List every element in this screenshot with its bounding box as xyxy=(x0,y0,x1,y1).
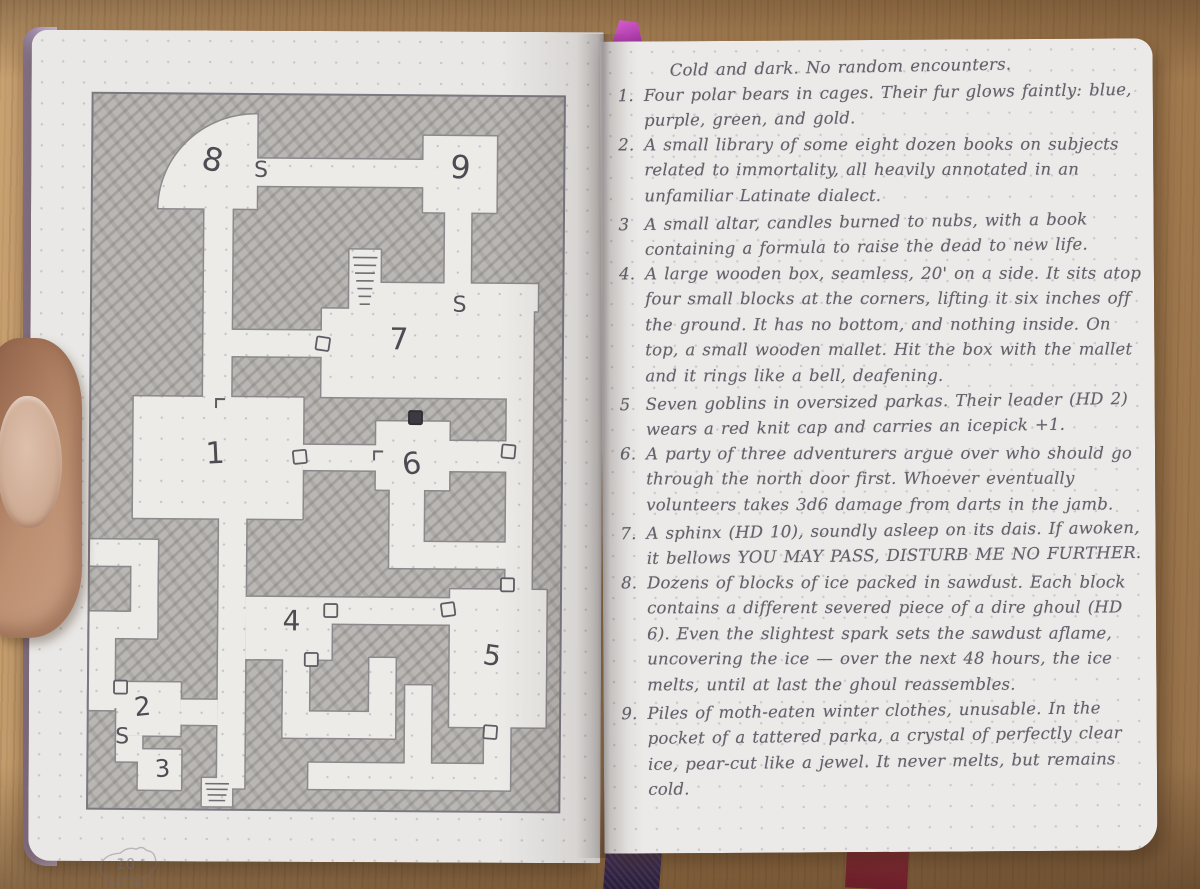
door-icon xyxy=(315,336,330,351)
door-icon xyxy=(501,444,515,458)
door-icon xyxy=(114,681,127,694)
floor-shape xyxy=(89,539,157,566)
entry-number: 7. xyxy=(620,521,636,547)
floor-shape xyxy=(321,309,533,399)
floor-shape xyxy=(217,517,246,788)
door-icon xyxy=(324,604,337,617)
entry-number: 2. xyxy=(618,133,634,158)
corner-tick-mark xyxy=(374,451,383,460)
floor-shape xyxy=(449,589,546,727)
floor-shape xyxy=(116,735,142,761)
door-icon xyxy=(441,602,456,617)
floor-shape xyxy=(349,250,381,312)
map-hatch-layer-2 xyxy=(87,92,566,813)
door-icon xyxy=(501,578,514,591)
stairs-icons xyxy=(205,256,377,801)
note-entry: 6.A party of three adventurers argue ove… xyxy=(646,441,1142,518)
page-number-doodle-left: 10 xyxy=(86,838,182,889)
room-label-7: 7 xyxy=(389,322,408,357)
floor-shape xyxy=(180,700,217,725)
room-label-6: 6 xyxy=(400,446,424,483)
entry-text: Dozens of blocks of ice packed in sawdus… xyxy=(647,573,1126,694)
note-entry: 8.Dozens of blocks of ice packed in sawd… xyxy=(647,570,1143,698)
floor-shape xyxy=(321,309,533,399)
floor-shape xyxy=(369,658,396,738)
map-border xyxy=(87,93,565,813)
stairs-icon xyxy=(205,784,229,801)
floor-shape xyxy=(448,441,508,472)
entry-number: 6. xyxy=(620,441,636,466)
note-entry: 2.A small library of some eight dozen bo… xyxy=(644,132,1140,209)
entry-text: A large wooden box, seamless, 20' on a s… xyxy=(645,264,1141,385)
floor-shape xyxy=(283,657,310,737)
entry-text: A party of three adventurers argue over … xyxy=(646,444,1132,515)
floor-shape xyxy=(283,711,396,738)
entry-number: 8. xyxy=(621,570,637,595)
notebook-photo-scene: SSS 897164523 10 Cold and dark. No rando… xyxy=(0,0,1200,889)
room-label-1: 1 xyxy=(205,436,226,472)
room-label-2: 2 xyxy=(133,692,152,723)
entry-text: Piles of moth-eaten winter clothes, unus… xyxy=(647,699,1122,800)
corner-tick-mark xyxy=(216,399,225,408)
floor-shape xyxy=(405,685,432,789)
floor-shape xyxy=(405,685,432,789)
floor-shape xyxy=(283,657,310,737)
entry-text: Four polar bears in cages. Their fur glo… xyxy=(644,80,1132,130)
thumb-nail xyxy=(0,396,62,528)
floor-shape xyxy=(448,441,508,472)
floor-shape xyxy=(133,396,303,519)
map-shaded-background xyxy=(87,92,566,813)
floor-shape xyxy=(303,445,377,471)
secret-door-marks: SSS xyxy=(115,157,468,752)
floor-shape xyxy=(303,445,377,471)
room-floors xyxy=(88,113,551,808)
note-entry: 5Seven goblins in oversized parkas. Thei… xyxy=(646,386,1143,443)
entry-text: A sphinx (HD 10), soundly asleep on its … xyxy=(646,518,1141,568)
floor-shape xyxy=(283,711,396,738)
note-entry: 7.A sphinx (HD 10), soundly asleep on it… xyxy=(646,515,1143,572)
floor-shape xyxy=(217,517,246,788)
secret-door-mark: S xyxy=(452,293,466,318)
floor-shape xyxy=(203,330,324,357)
stairs-icon xyxy=(352,257,377,304)
note-entry: 4.A large wooden box, seamless, 20' on a… xyxy=(645,261,1141,389)
entry-number: 3 xyxy=(618,213,629,239)
floor-shape xyxy=(254,159,425,187)
door-icon xyxy=(483,725,497,739)
room-label-9: 9 xyxy=(449,148,472,187)
floor-shape xyxy=(158,114,257,209)
page-number-left: 10 xyxy=(116,855,135,873)
door-icon xyxy=(409,411,422,424)
entry-text: A small altar, candles burned to nubs, w… xyxy=(644,210,1088,260)
room-label-8: 8 xyxy=(198,139,227,181)
secret-door-mark: S xyxy=(115,724,129,749)
pencil-tick-marks xyxy=(216,399,384,460)
floor-shape xyxy=(389,542,507,569)
thumb xyxy=(0,338,82,638)
note-entry: 3A small altar, candles burned to nubs, … xyxy=(644,206,1141,263)
floor-shape xyxy=(88,612,115,710)
floor-shape xyxy=(133,396,303,519)
note-entries: 1.Four polar bears in cages. Their fur g… xyxy=(614,79,1144,802)
entry-number: 5 xyxy=(620,392,631,418)
dungeon-map: SSS 897164523 xyxy=(85,91,567,814)
floor-shape xyxy=(245,597,332,660)
room-label-5: 5 xyxy=(481,638,504,673)
floor-shape xyxy=(445,211,472,287)
dungeon-map-svg: SSS 897164523 xyxy=(85,91,567,814)
note-entry: 9.Piles of moth-eaten winter clothes, un… xyxy=(647,695,1144,803)
floor-shape xyxy=(330,597,452,624)
floor-shape xyxy=(389,489,424,545)
floor-shape xyxy=(254,159,425,187)
floor-shape xyxy=(308,763,510,791)
floor-shape xyxy=(131,540,158,638)
floor-shape xyxy=(389,489,424,545)
floor-shape xyxy=(89,612,157,639)
floor-shape xyxy=(88,684,128,708)
room-label-3: 3 xyxy=(154,754,171,783)
note-entry: 1.Four polar bears in cages. Their fur g… xyxy=(644,77,1141,134)
floor-shape xyxy=(445,211,472,287)
floor-shape xyxy=(349,250,381,312)
floor-shape xyxy=(116,682,181,736)
floor-shape xyxy=(138,749,181,789)
floor-shape xyxy=(138,749,181,789)
room-number-labels: 897164523 xyxy=(132,138,507,786)
door-icon xyxy=(305,653,318,666)
floor-shape xyxy=(484,724,510,768)
left-page: SSS 897164523 10 xyxy=(28,30,604,863)
floor-shape xyxy=(449,589,546,727)
entry-text: Seven goblins in oversized parkas. Their… xyxy=(646,389,1129,439)
map-hatch-layer-1 xyxy=(87,92,566,813)
room-wall-lines xyxy=(88,113,551,808)
floor-shape xyxy=(116,682,181,736)
bookmark-ribbon-maroon-icon xyxy=(845,848,909,889)
floor-shape xyxy=(202,778,232,806)
floor-shape xyxy=(158,114,257,209)
floor-shape xyxy=(89,539,157,566)
floor-shape xyxy=(376,421,450,490)
floor-shape xyxy=(423,136,497,213)
floor-shape xyxy=(88,684,128,708)
floor-shape xyxy=(202,778,232,806)
notes-intro-line: Cold and dark. No random encounters. xyxy=(613,49,1139,84)
floor-shape xyxy=(308,763,510,791)
entry-number: 9. xyxy=(621,701,637,727)
floor-shape xyxy=(377,283,538,311)
floor-shape xyxy=(245,597,332,660)
entry-text: A small library of some eight dozen book… xyxy=(644,135,1118,206)
door-icons xyxy=(114,335,517,740)
right-page: Cold and dark. No random encounters. 1.F… xyxy=(600,38,1158,853)
handwritten-notes: Cold and dark. No random encounters. 1.F… xyxy=(614,52,1145,802)
floor-shape xyxy=(369,658,396,738)
floor-shape xyxy=(203,204,233,401)
floor-shape xyxy=(389,542,507,569)
door-icon xyxy=(293,450,307,464)
floor-shape xyxy=(423,136,497,213)
floor-shape xyxy=(376,421,450,490)
secret-door-mark: S xyxy=(254,158,268,183)
floor-shape xyxy=(89,612,157,639)
entry-number: 4. xyxy=(619,262,635,287)
entry-number: 1. xyxy=(618,83,634,109)
floor-shape xyxy=(88,612,115,710)
room-label-4: 4 xyxy=(283,604,301,637)
floor-shape xyxy=(505,309,533,594)
floor-shape xyxy=(131,540,158,638)
floor-shape xyxy=(203,330,324,357)
floor-shape xyxy=(203,204,233,401)
floor-shape xyxy=(484,724,510,768)
floor-shape xyxy=(116,735,142,761)
floor-shape xyxy=(180,700,217,725)
floor-shape xyxy=(505,309,533,594)
floor-shape xyxy=(330,597,452,624)
floor-shape xyxy=(377,283,538,311)
